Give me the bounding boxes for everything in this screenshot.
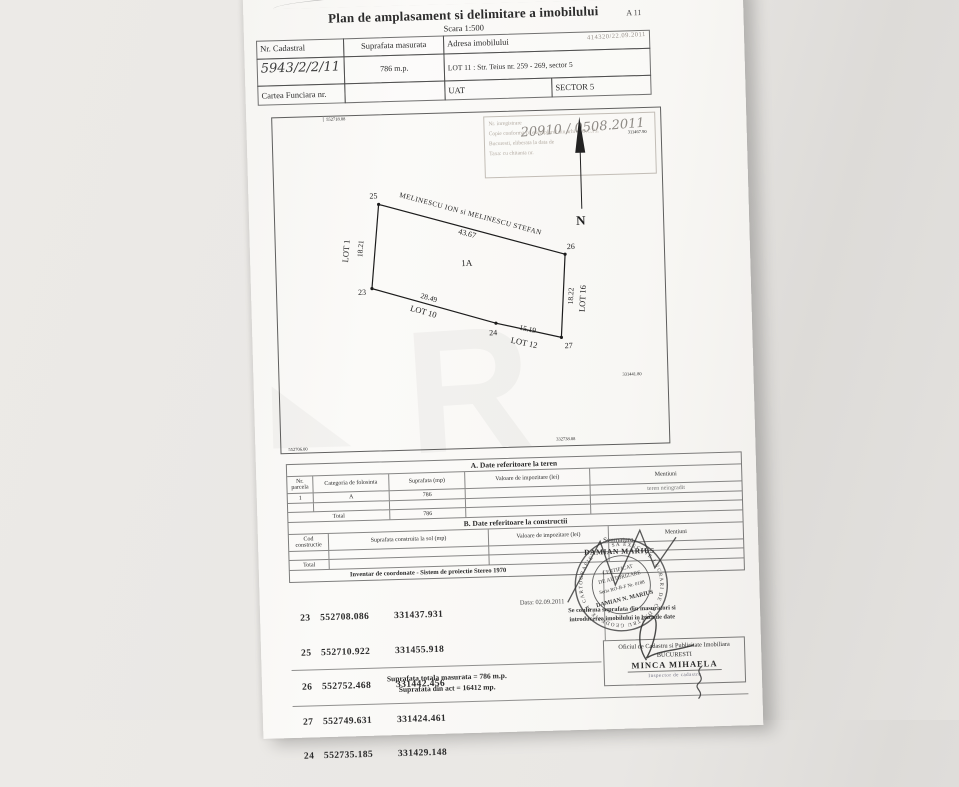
right-edge-length: 18.22 (566, 287, 576, 304)
parcel-boundary (370, 199, 568, 342)
officer-signature-scribble (615, 610, 706, 662)
sector-cell: SECTOR 5 (551, 75, 652, 98)
right-lot-label: LOT 16 (577, 285, 588, 312)
table-a-h2: Suprafata (mp) (389, 472, 465, 490)
pt-x: 552735.185 (324, 749, 398, 763)
pt-y: 331455.918 (395, 644, 444, 657)
sheet-code: A 11 (626, 8, 641, 17)
cadastral-number-handwritten: 5943/2/2/11 (261, 59, 341, 76)
coordinate-row: 23552708.086331437.931 (300, 610, 443, 625)
north-arrow: N (573, 117, 587, 228)
pt-x: 552749.631 (323, 715, 397, 729)
vertex-23: 23 (358, 288, 366, 297)
bottom-right-lot: LOT 12 (510, 335, 539, 350)
grid-label-topright: 311467.90 (628, 129, 648, 135)
coordinate-row: 25552710.922331455.918 (301, 644, 444, 659)
pt-y: 331437.931 (394, 610, 443, 623)
coordinate-row: 27552749.631331424.461 (303, 713, 446, 728)
pt-id: 27 (303, 717, 323, 729)
scanned-document-sheet: Plan de amplasament si delimitare a imob… (243, 0, 764, 739)
grid-label-bottomright: 332738.08 (556, 436, 576, 442)
vertex-26: 26 (567, 242, 575, 251)
vertex-25: 25 (369, 191, 377, 200)
bottom-right-length: 15.19 (519, 323, 538, 335)
vertex-27: 27 (565, 341, 573, 350)
table-a-h0: Nr. parcela (287, 476, 313, 493)
uat-cell: UAT (444, 78, 553, 101)
address-value: LOT 11 : Str. Teius nr. 259 - 269, secto… (448, 60, 573, 72)
land-book-label: Cartea Funciara nr. (261, 89, 326, 101)
act-area: Suprafata din act = 16412 mp. (399, 683, 496, 695)
coordinate-row: 24552735.185331429.148 (304, 748, 447, 763)
measured-area-value: 786 m.p. (380, 64, 408, 74)
north-label: N (576, 213, 586, 228)
vertex-24: 24 (489, 328, 497, 337)
pt-x: 552710.922 (321, 646, 395, 660)
sector-value: SECTOR 5 (555, 81, 594, 92)
top-edge-length: 43.67 (457, 227, 477, 240)
table-a-r1c0: 1 (288, 493, 314, 503)
pt-id: 24 (304, 751, 324, 763)
pt-id: 23 (300, 613, 320, 625)
pen-mark-scribble (690, 664, 711, 701)
parcel-id-label: 1A (461, 258, 473, 268)
parcel-vertex-dots (368, 198, 569, 345)
area-label: Suprafata masurata (361, 39, 427, 51)
cadastral-value-cell: 5943/2/2/11 (256, 56, 345, 86)
land-book-cell: Cartea Funciara nr. (257, 83, 346, 105)
table-b-h0: Cod constructie (289, 534, 329, 551)
address-label: Adresa imobilului (447, 37, 509, 49)
uat-label: UAT (448, 85, 465, 95)
area-value-cell: 786 m.p. (343, 54, 445, 85)
cadastral-label: Nr. Cadastral (260, 42, 305, 53)
address-registration-stamp: 414320/22.09.2011 (587, 31, 646, 42)
grid-label-top: 552718.08 (326, 116, 346, 122)
grid-label-right: 331441.80 (622, 371, 642, 377)
parcel-plan-svg: 552718.08 311467.90 331441.80 552706.00 … (271, 106, 670, 454)
table-b-total-label: Total (290, 560, 330, 570)
pt-id: 25 (301, 648, 321, 660)
grid-label-bottomleft: 552706.00 (288, 446, 308, 452)
left-edge-length: 18.21 (355, 240, 365, 258)
table-a-h1: Categoria de folosinta (313, 474, 389, 492)
pt-x: 552708.086 (320, 611, 394, 625)
left-lot-label: LOT 1 (340, 239, 352, 262)
date-label: Data: 02.09.2011 (520, 598, 565, 606)
land-book-value-cell (344, 81, 446, 104)
pt-y: 331429.148 (398, 748, 447, 761)
